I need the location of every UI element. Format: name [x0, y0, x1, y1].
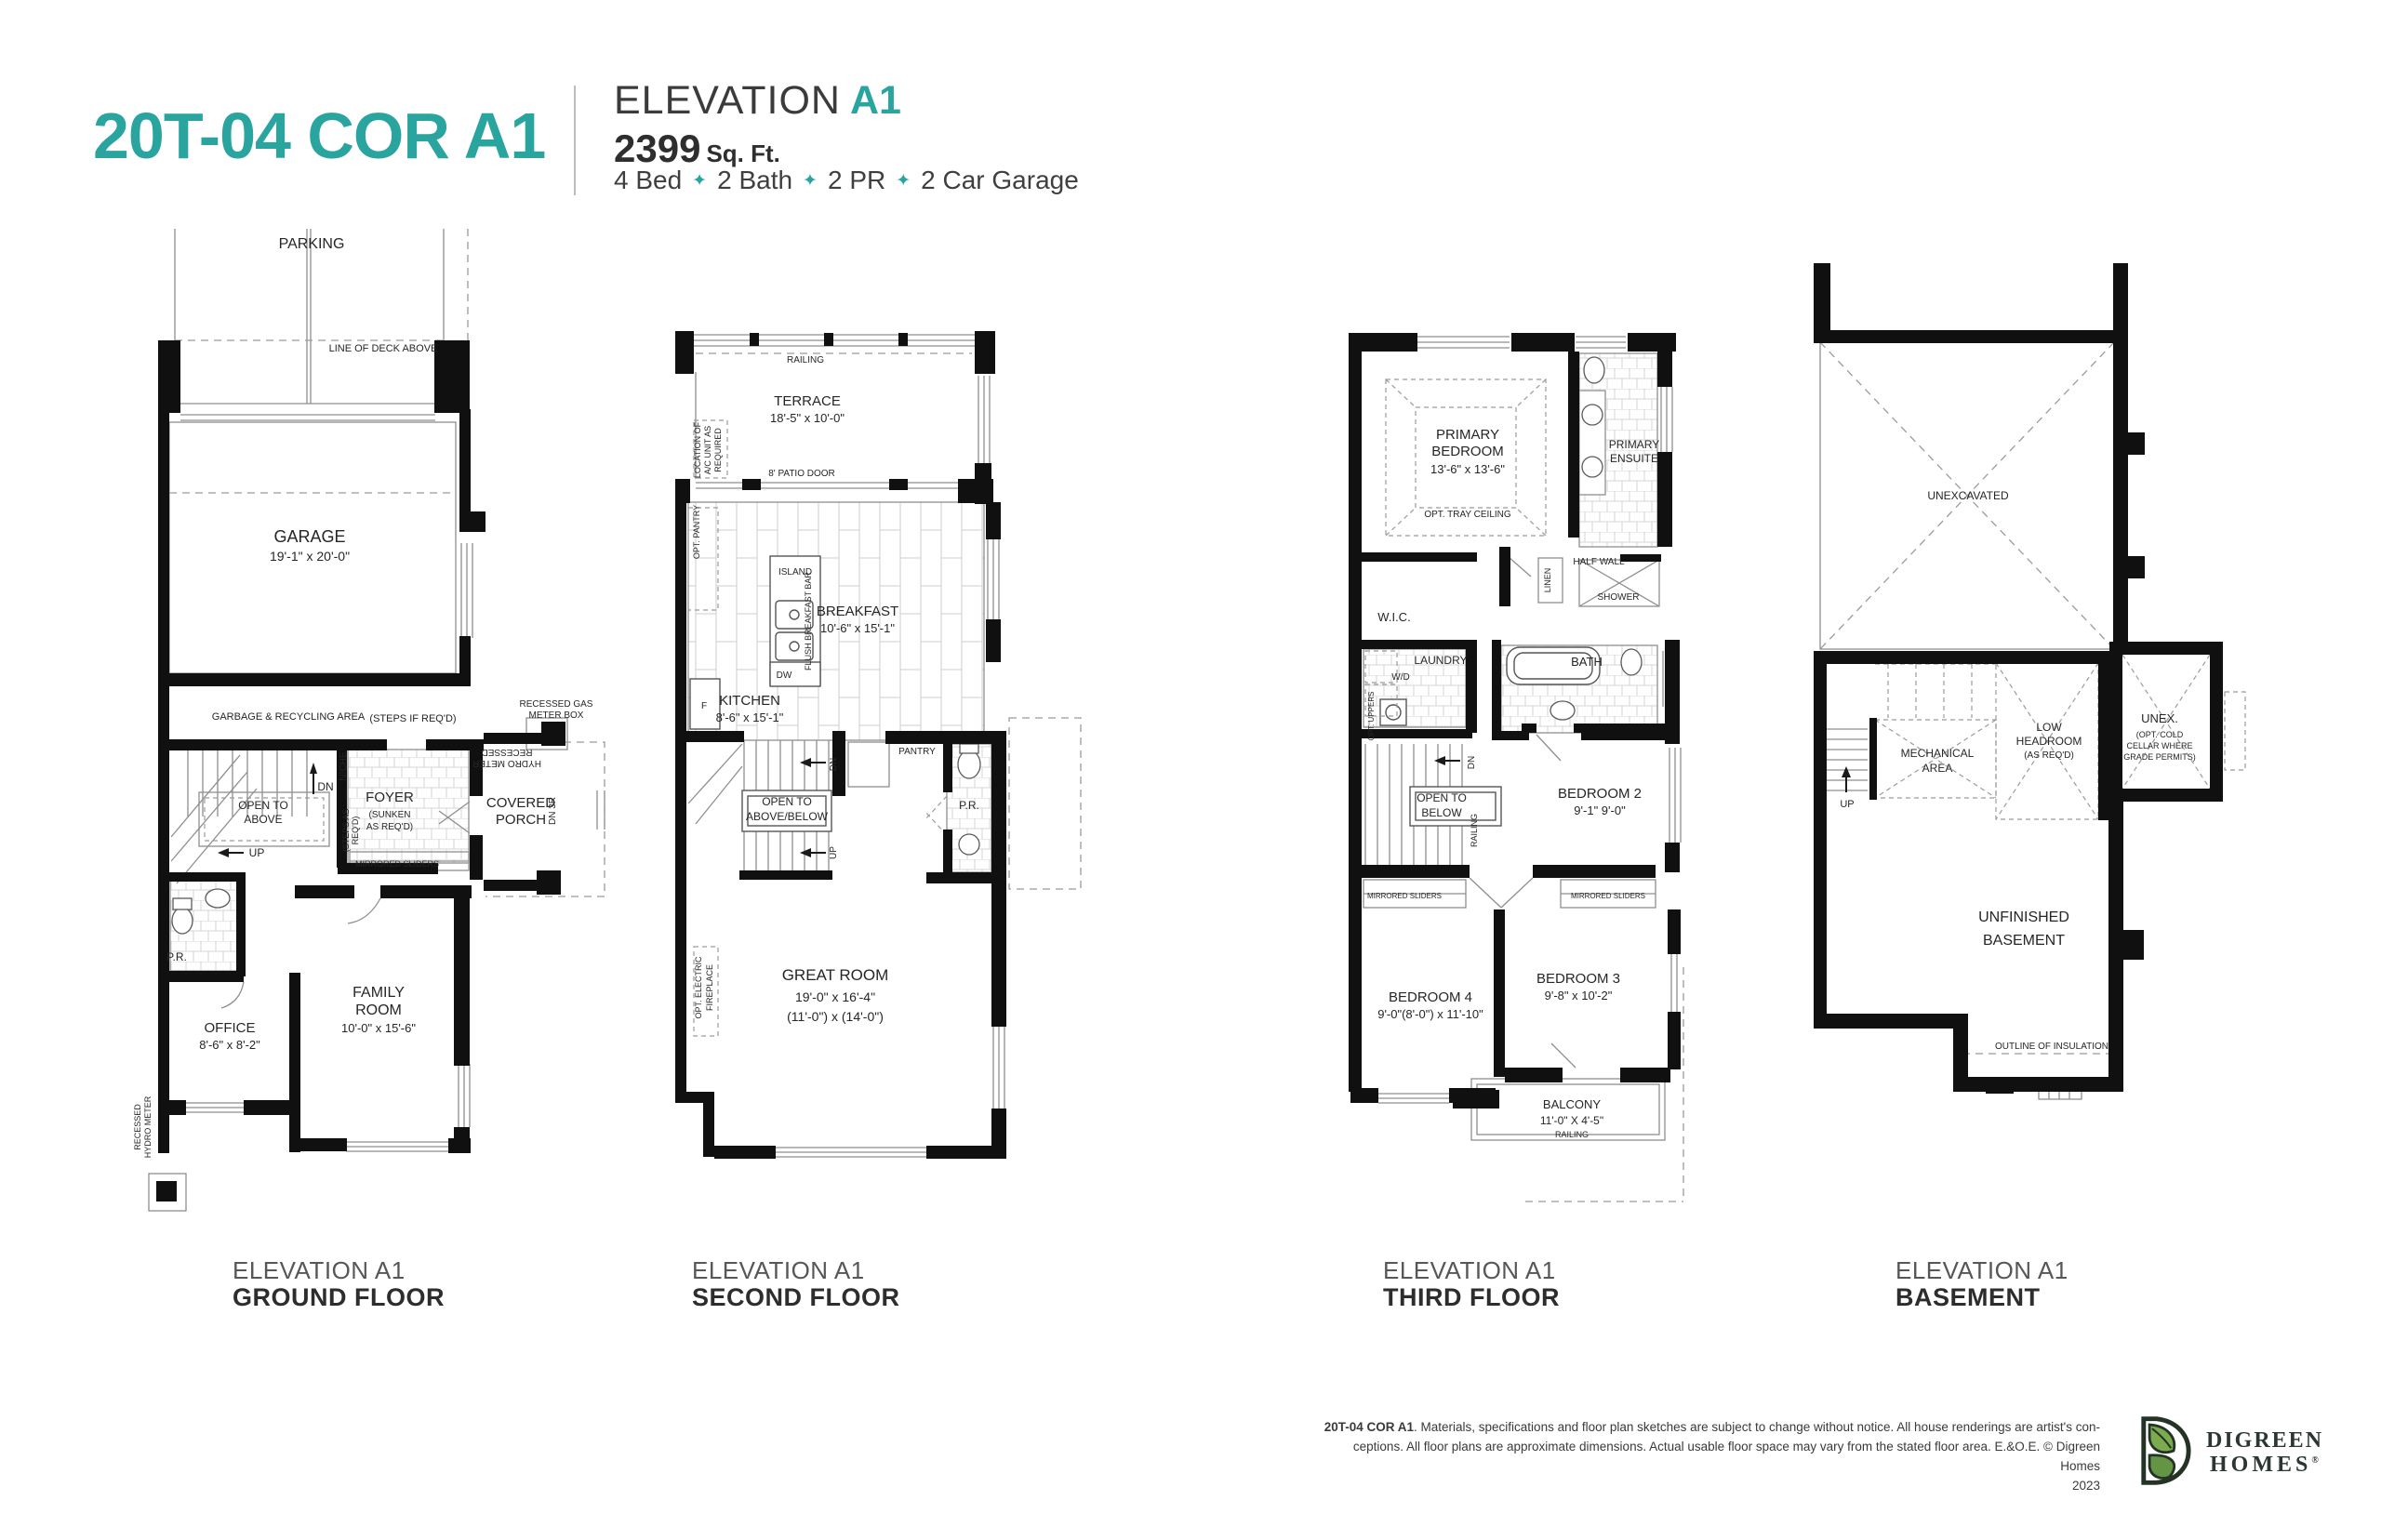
ground-floor-plan: PARKINGLINE OF DECK ABOVEGARAGE19'-1" x …: [130, 223, 623, 1255]
plan-annotation: DN 3R: [548, 797, 558, 825]
plan-annotation: RECESSED GAS: [520, 699, 593, 710]
diamond-icon: ✦: [692, 171, 707, 191]
elevation-label: ELEVATION: [614, 78, 841, 123]
caption-floor-name: SECOND FLOOR: [692, 1284, 900, 1311]
plan-annotation: ABOVE/BELOW: [746, 810, 829, 823]
elevation-value: A1: [850, 78, 901, 123]
plan-annotation: OUTLINE OF INSULATION: [1995, 1042, 2108, 1052]
plan-annotation: BELOW: [1421, 806, 1462, 819]
plan-annotation: A/C UNIT AS: [703, 426, 712, 474]
plan-annotation: P.R.: [166, 950, 187, 963]
plan-annotation: 10'-6" x 15'-1": [820, 621, 895, 635]
plan-annotation: (AS REQ'D): [2024, 750, 2074, 761]
plan-annotation: COVERED: [486, 795, 555, 811]
digreen-leaf-logo-icon: [2128, 1414, 2193, 1488]
plan-annotation: 13'-6" x 13'-6": [1430, 462, 1505, 476]
plan-annotation: 19'-1" x 20'-0": [270, 549, 350, 564]
plan-annotation: OPEN TO: [1417, 791, 1467, 804]
plan-annotation: OPT. PANTRY: [692, 505, 701, 559]
elevation-heading: ELEVATIONA1: [614, 78, 901, 124]
plan-annotation: LAUNDRY: [1414, 654, 1467, 667]
feature-pr: 2 PR: [828, 166, 885, 194]
plan-annotation: BEDROOM 4: [1389, 989, 1472, 1005]
floorplan-sheet: 20T-04 COR A1 ELEVATIONA1 2399Sq. Ft. 4 …: [0, 0, 2381, 1540]
plan-annotation: (STEPS AS: [341, 809, 351, 853]
plan-annotation: UNEXCAVATED: [1927, 489, 2009, 502]
plan-annotation: DN: [829, 758, 839, 771]
caption-floor-name: GROUND FLOOR: [233, 1284, 445, 1311]
plan-annotation: MIRRORED SLIDERS: [1367, 892, 1442, 900]
plan-annotation: DW: [777, 670, 792, 681]
feature-garage: 2 Car Garage: [921, 166, 1079, 194]
caption-elevation: ELEVATION A1: [1383, 1257, 1560, 1284]
plan-annotation: LINE OF DECK ABOVE: [329, 343, 438, 354]
plan-annotation: OPT. TRAY CEILING: [1424, 510, 1511, 520]
plan-annotation: GREAT ROOM: [782, 966, 889, 984]
caption-third-floor: ELEVATION A1 THIRD FLOOR: [1383, 1257, 1560, 1311]
plan-annotation: BEDROOM: [1431, 444, 1504, 459]
plan-annotation: BATH: [1571, 655, 1603, 669]
plan-annotation: GARBAGE & RECYCLING AREA: [212, 711, 366, 723]
disclaimer-text1: . Materials, specifications and floor pl…: [1414, 1420, 2100, 1434]
plan-annotation: BREAKFAST: [817, 604, 898, 619]
page-title: 20T-04 COR A1: [93, 99, 545, 173]
sqft-number: 2399: [614, 126, 700, 170]
caption-ground-floor: ELEVATION A1 GROUND FLOOR: [233, 1257, 445, 1311]
feature-beds: 4 Bed: [614, 166, 682, 194]
plan-annotation: HEADROOM: [2016, 735, 2082, 748]
plan-annotation: GRADE PERMITS): [2123, 752, 2196, 762]
caption-elevation: ELEVATION A1: [1895, 1257, 2068, 1284]
registered-mark: ®: [2311, 1455, 2318, 1466]
plan-annotation: DN: [317, 780, 333, 793]
plan-annotation: BEDROOM 3: [1536, 971, 1620, 987]
plan-annotation: ABOVE: [244, 813, 282, 826]
plan-annotation: AREA: [1922, 762, 1953, 775]
plan-annotation: ROOM: [355, 1002, 402, 1018]
logo-digreen: DIGREEN: [2206, 1428, 2323, 1454]
header-divider: [574, 86, 576, 195]
feature-line: 4 Bed✦2 Bath✦2 PR✦2 Car Garage: [614, 166, 1079, 195]
sqft-unit: Sq. Ft.: [706, 139, 779, 167]
third-floor-plan: PRIMARYBEDROOM13'-6" x 13'-6"OPT. TRAY C…: [1335, 325, 1772, 1339]
plan-annotation: LINEN: [1543, 568, 1552, 593]
plan-annotation: METER BOX: [529, 710, 584, 721]
plan-annotation: 8'-6" x 15'-1": [716, 710, 784, 724]
diamond-icon: ✦: [896, 171, 911, 191]
disclaimer-line2: ceptions. All floor plans are approximat…: [1319, 1437, 2100, 1476]
plan-annotation: KITCHEN: [719, 693, 780, 709]
plan-annotation: FAMILY: [352, 985, 405, 1001]
plan-annotation: BEDROOM 2: [1558, 786, 1642, 802]
plan-annotation: (SUNKEN: [368, 810, 410, 820]
plan-annotation: UP: [829, 846, 839, 859]
plan-annotation: DN: [1467, 756, 1477, 769]
plan-annotation: 18'-5" x 10'-0": [770, 411, 845, 425]
plan-annotation: ENSUITE: [1610, 452, 1658, 465]
plan-annotation: BASEMENT: [1983, 933, 2065, 949]
plan-annotation: (STEPS IF REQ'D): [369, 713, 456, 724]
plan-annotation: 9'-1" 9'-0": [1574, 803, 1626, 817]
plan-annotation: LOCATION OF: [693, 421, 702, 478]
plan-annotation: PRIMARY: [1609, 438, 1659, 451]
plan-annotation: REQUIRED: [713, 428, 723, 472]
plan-annotation: 11'-0" X 4'-5": [1540, 1114, 1603, 1127]
plan-annotation: PORCH: [496, 812, 546, 828]
plan-annotation: 9'-8" x 10'-2": [1545, 989, 1613, 1002]
plan-annotation: (OPT. COLD: [2136, 730, 2184, 739]
logo-homes: HOMES®: [2210, 1453, 2319, 1478]
plan-annotation: HALF WALL: [1573, 557, 1625, 567]
plan-annotation: OPT. UPPERS: [1367, 692, 1376, 741]
caption-floor-name: THIRD FLOOR: [1383, 1284, 1560, 1311]
disclaimer-line1: 20T-04 COR A1. Materials, specifications…: [1319, 1417, 2100, 1437]
plan-annotation: MIRRORED SLIDERS: [355, 859, 439, 869]
plan-annotation: FLUSH BREAKFAST BAR: [804, 572, 813, 670]
plan-annotation: LOW: [2036, 721, 2062, 734]
caption-elevation: ELEVATION A1: [692, 1257, 900, 1284]
plan-annotation: GARAGE: [273, 527, 345, 546]
plan-annotation: (11'-0") x (14'-0"): [787, 1009, 884, 1024]
plan-annotation: RECESSED: [481, 747, 532, 757]
plan-annotation: RAILING: [787, 355, 824, 365]
plan-annotation: W/D: [1391, 672, 1409, 683]
caption-floor-name: BASEMENT: [1895, 1284, 2068, 1311]
plan-annotation: UP: [249, 846, 265, 859]
plan-annotation: 9'-0"(8'-0") x 11'-10": [1377, 1007, 1483, 1021]
plan-annotation: P.R.: [959, 799, 979, 812]
plan-annotation: PARKING: [279, 236, 345, 252]
plan-annotation: CELLAR WHERE: [2126, 741, 2192, 750]
disclaimer: 20T-04 COR A1. Materials, specifications…: [1319, 1417, 2100, 1495]
plan-annotation: HYDRO METER: [472, 758, 541, 768]
area-heading: 2399Sq. Ft.: [614, 126, 780, 171]
caption-elevation: ELEVATION A1: [233, 1257, 445, 1284]
plan-annotation: OFFICE: [205, 1020, 256, 1036]
plan-annotation: FOYER: [366, 790, 414, 805]
plan-annotation: OPEN TO: [238, 799, 288, 812]
plan-annotation: UNFINISHED: [1978, 909, 2069, 925]
plan-annotation: 10'-0" x 15'-6": [341, 1021, 416, 1035]
feature-baths: 2 Bath: [717, 166, 792, 194]
caption-basement: ELEVATION A1 BASEMENT: [1895, 1257, 2068, 1311]
plan-annotation: REQ'D): [351, 816, 360, 845]
plan-annotation: RECESSED: [133, 1104, 142, 1150]
plan-annotation: OPT. ELECTRIC: [694, 956, 703, 1019]
plan-annotation: BALCONY: [1543, 1097, 1601, 1111]
plan-annotation: UP: [1840, 799, 1854, 810]
plan-annotation: FIREPLACE: [705, 964, 714, 1011]
plan-annotation: 19'-0" x 16'-4": [795, 989, 875, 1004]
second-floor-plan: RAILINGTERRACE18'-5" x 10'-0"LOCATION OF…: [670, 312, 1097, 1334]
plan-annotation: PANTRY: [898, 747, 936, 757]
plan-annotation: UNEX.: [2141, 711, 2178, 725]
plan-annotation: AS REQ'D): [366, 822, 413, 832]
plan-annotation: MIRRORED SLIDERS: [1571, 892, 1645, 900]
basement-plan: UNEXCAVATEDMECHANICALAREALOWHEADROOM(AS …: [1800, 251, 2293, 1209]
disclaimer-model: 20T-04 COR A1: [1324, 1420, 1414, 1434]
diamond-icon: ✦: [803, 171, 818, 191]
plan-annotation: RAILING: [1555, 1130, 1589, 1139]
plan-annotation: 8' PATIO DOOR: [768, 469, 835, 479]
plan-annotation: OPEN TO: [762, 795, 812, 808]
plan-annotation: NICHE: [339, 751, 349, 780]
plan-annotation: F: [701, 701, 707, 711]
plan-annotation: SHOWER: [1598, 592, 1640, 603]
plan-annotation: 8'-6" x 8'-2": [199, 1038, 260, 1052]
disclaimer-year: 2023: [1319, 1476, 2100, 1495]
caption-second-floor: ELEVATION A1 SECOND FLOOR: [692, 1257, 900, 1311]
plan-annotation: MECHANICAL: [1901, 747, 1975, 760]
plan-annotation: RAILING: [1470, 814, 1479, 847]
plan-annotation: TERRACE: [774, 393, 841, 409]
plan-annotation: PRIMARY: [1436, 427, 1499, 443]
plan-annotation: W.I.C.: [1377, 610, 1410, 624]
plan-annotation: HYDRO METER: [143, 1095, 153, 1158]
